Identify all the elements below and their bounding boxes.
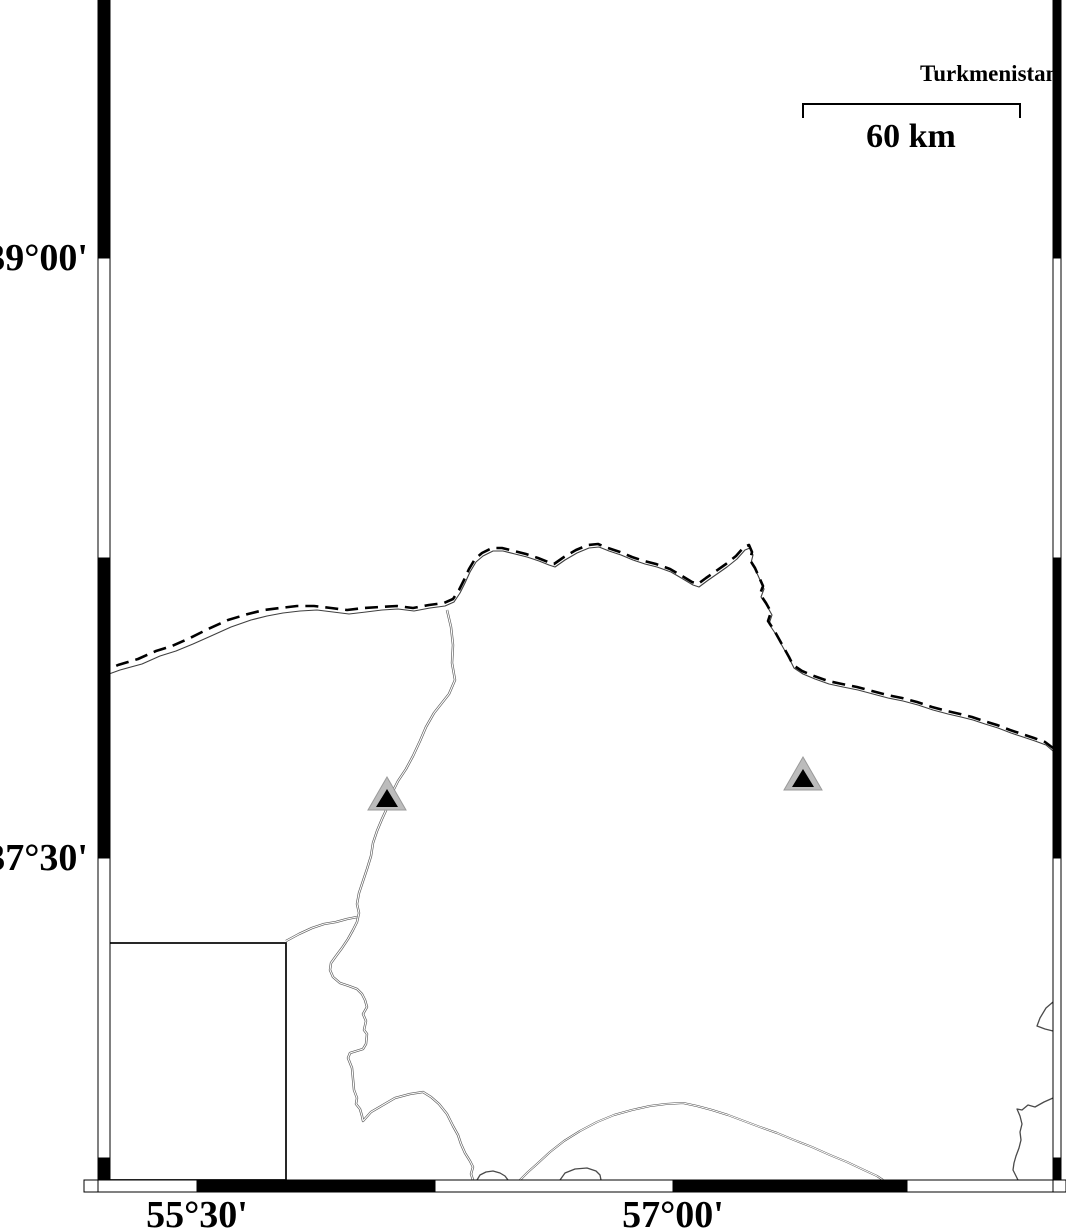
frame-bottom-band-seg-6 xyxy=(1053,1180,1066,1192)
frame-bottom-band-seg-5 xyxy=(907,1180,1053,1192)
frame-right-band-seg-3 xyxy=(1053,858,1061,1158)
scale-bar-group xyxy=(803,104,1020,118)
frame-left-band-seg-1 xyxy=(98,258,110,558)
frame-left-band-seg-3 xyxy=(98,858,110,1158)
coast-blob xyxy=(560,1168,601,1180)
latitude-label-37-30: 37°30' xyxy=(0,839,88,877)
river-from-inset-core xyxy=(286,917,357,941)
frame-bottom-band-seg-0 xyxy=(84,1180,98,1192)
coast-arc xyxy=(520,1103,883,1180)
latitude-label-39-00: 39°00' xyxy=(0,239,88,277)
station-markers-group xyxy=(368,757,822,810)
frame-right-band-seg-0 xyxy=(1053,0,1061,258)
river-main-core xyxy=(330,610,473,1180)
longitude-label-57-00: 57°00' xyxy=(563,1196,783,1229)
scale-bar-bracket xyxy=(803,104,1020,118)
map-figure xyxy=(0,0,1066,1229)
river-from-inset xyxy=(286,917,357,941)
frame-bottom-band-seg-1 xyxy=(98,1180,197,1192)
right-edge-notch xyxy=(1037,1002,1053,1031)
frame-left-band-seg-0 xyxy=(98,0,110,258)
frame-left-band-seg-2 xyxy=(98,558,110,858)
frame-left-band-seg-4 xyxy=(98,1158,110,1180)
country-border-dashed xyxy=(98,544,1053,748)
inset-box-group xyxy=(108,943,286,1180)
frame-right-band-seg-1 xyxy=(1053,258,1061,558)
frame-bottom-band-seg-3 xyxy=(435,1180,673,1192)
coast-hump xyxy=(477,1171,508,1180)
right-edge-line xyxy=(1013,1098,1053,1180)
frame-bottom-band-seg-2 xyxy=(197,1180,435,1192)
frame-right-band-seg-2 xyxy=(1053,558,1061,858)
country-name-label: Turkmenistan xyxy=(920,62,1058,85)
frame-bottom-band-seg-4 xyxy=(673,1180,907,1192)
longitude-label-55-30: 55°30' xyxy=(87,1196,307,1229)
map-canvas: 39°00' 37°30' 55°30' 57°00' Turkmenistan… xyxy=(0,0,1066,1229)
frame-right-band-seg-4 xyxy=(1053,1158,1061,1180)
river-main xyxy=(330,610,473,1180)
border-companion-line xyxy=(98,547,1053,751)
coast-arc-core xyxy=(520,1103,883,1180)
scale-bar-label: 60 km xyxy=(801,120,1021,154)
inset-box xyxy=(108,943,286,1180)
